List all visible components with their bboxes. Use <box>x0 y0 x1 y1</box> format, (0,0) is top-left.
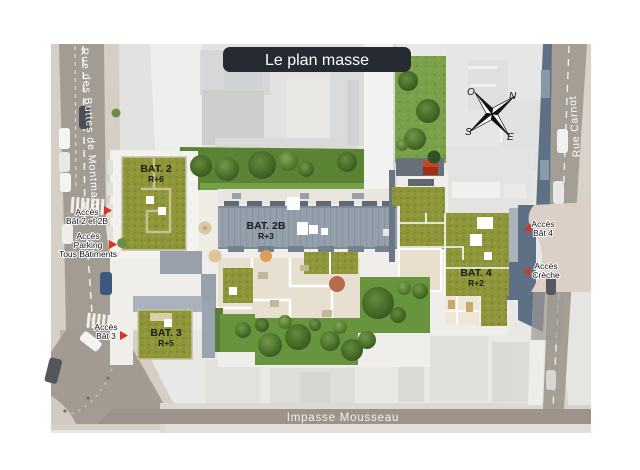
svg-text:Tous Bâtiments: Tous Bâtiments <box>59 249 117 259</box>
svg-text:Bât 2 et 2B: Bât 2 et 2B <box>66 216 108 226</box>
svg-text:O: O <box>467 87 475 98</box>
svg-text:Bât 4: Bât 4 <box>533 228 553 238</box>
svg-text:R+3: R+3 <box>258 231 274 241</box>
svg-text:R+5: R+5 <box>158 338 174 348</box>
svg-text:E: E <box>507 132 514 143</box>
svg-text:S: S <box>465 127 472 138</box>
svg-text:R+6: R+6 <box>148 174 164 184</box>
svg-text:Impasse Mousseau: Impasse Mousseau <box>287 412 400 424</box>
svg-text:Bât 3: Bât 3 <box>96 331 116 341</box>
svg-text:R+2: R+2 <box>468 278 484 288</box>
svg-text:Crèche: Crèche <box>532 270 560 280</box>
svg-text:N: N <box>509 91 517 102</box>
svg-text:Le plan masse: Le plan masse <box>265 52 369 69</box>
